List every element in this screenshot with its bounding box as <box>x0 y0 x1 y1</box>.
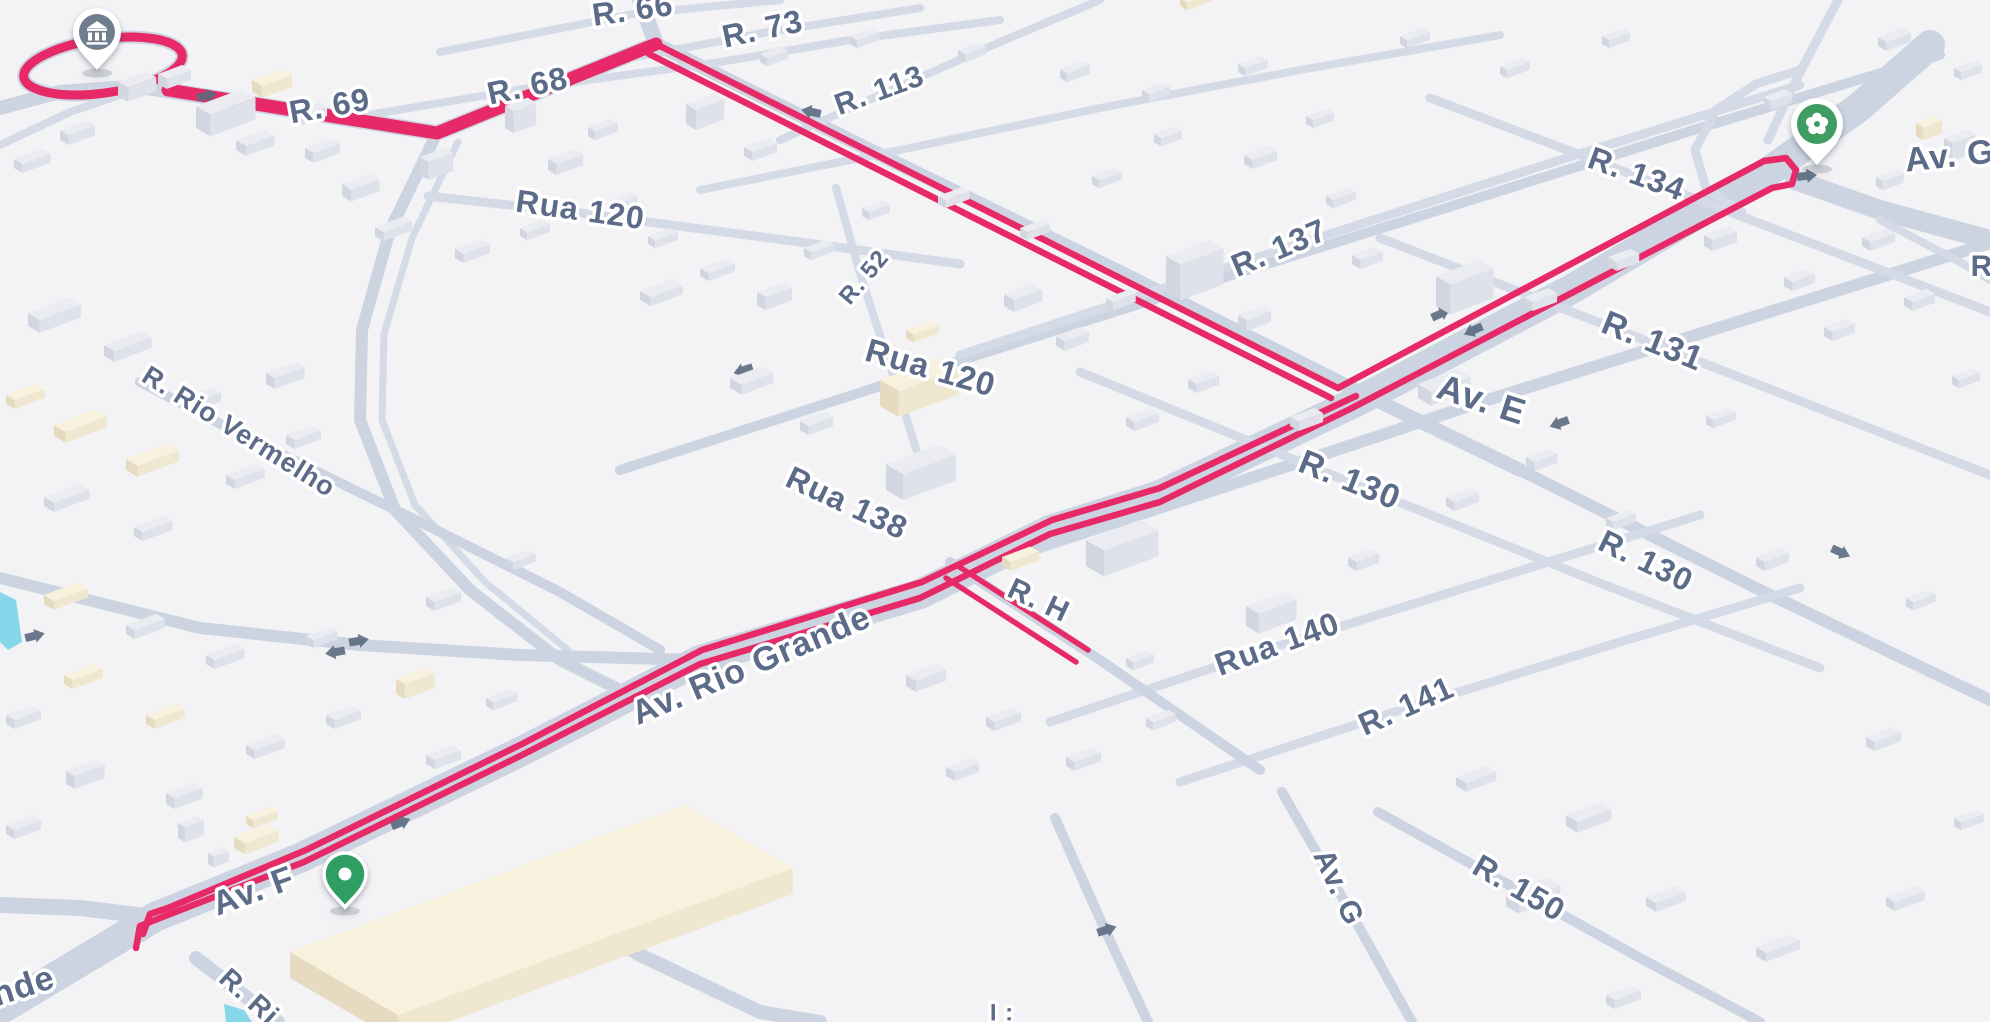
map-svg: R. 66R. 73R. 68R. 69R. 113Rua 120R. 137R… <box>0 0 1990 1022</box>
pin-shadow <box>1802 165 1832 174</box>
street-label: I : <box>990 999 1014 1022</box>
street-label: R <box>1971 250 1990 283</box>
map-canvas[interactable]: R. 66R. 73R. 68R. 69R. 113Rua 120R. 137R… <box>0 0 1990 1022</box>
origin-dot-icon <box>339 868 352 881</box>
